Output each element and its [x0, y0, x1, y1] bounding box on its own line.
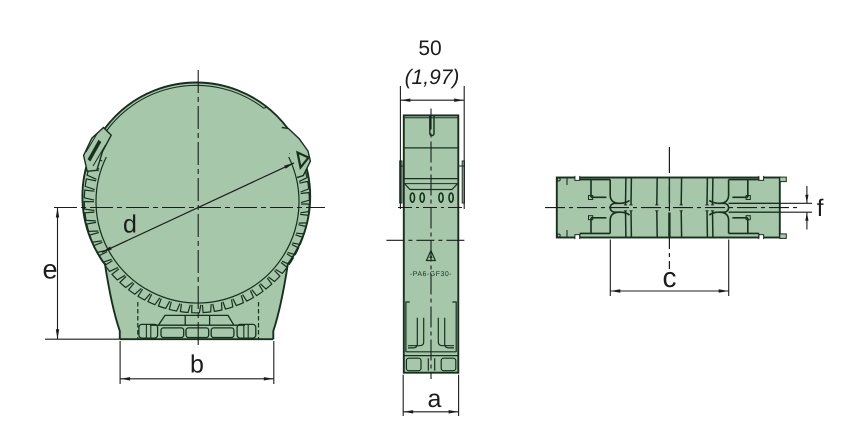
svg-text:-PA6-GF30-: -PA6-GF30- — [410, 271, 452, 278]
svg-text:e: e — [42, 255, 57, 285]
svg-text:f: f — [817, 195, 824, 222]
svg-text:d: d — [123, 211, 137, 239]
svg-text:a: a — [428, 385, 442, 413]
svg-text:b: b — [190, 351, 204, 379]
svg-text:c: c — [663, 262, 677, 293]
svg-text:(1,97): (1,97) — [405, 66, 460, 89]
svg-text:50: 50 — [418, 37, 441, 60]
